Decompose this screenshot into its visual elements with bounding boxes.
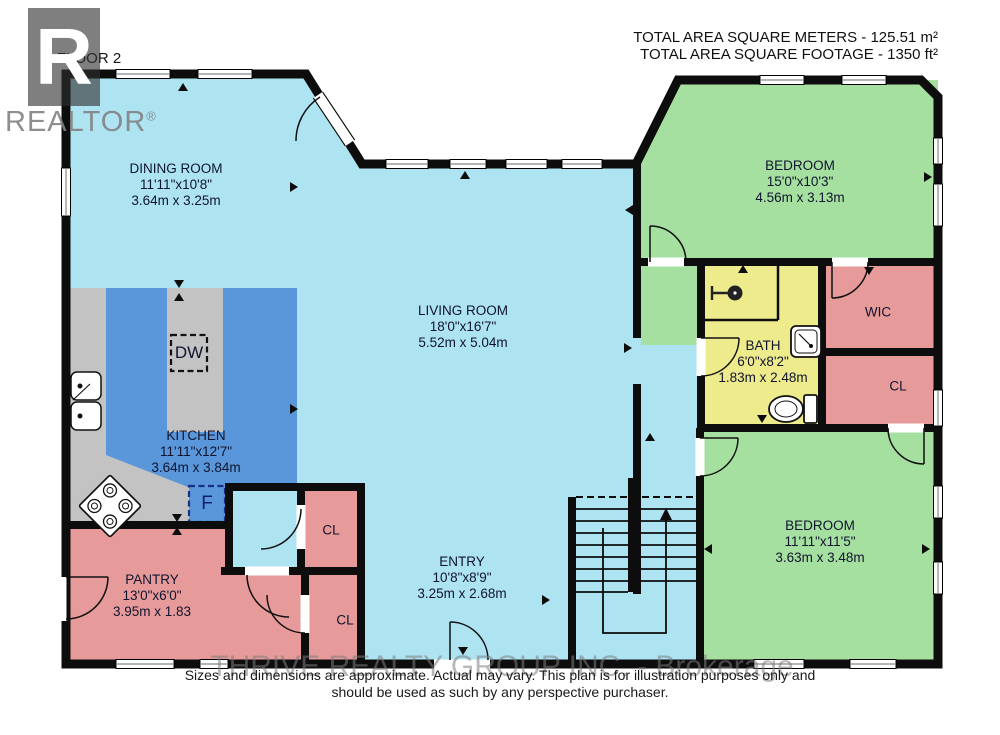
room-name: KITCHEN	[151, 428, 240, 444]
room-dim-ft: 11'11"x12'7"	[151, 444, 240, 460]
room-name: DINING ROOM	[130, 161, 223, 177]
registered-mark: ®	[146, 108, 157, 123]
room-label-bath: BATH 6'0"x8'2" 1.83m x 2.48m	[718, 338, 807, 386]
room-dim-ft: 15'0"x10'3"	[755, 174, 844, 190]
toilet-icon	[769, 395, 817, 423]
label-wic: WIC	[865, 305, 891, 320]
room-dim-m: 4.56m x 3.13m	[755, 190, 844, 206]
label-fridge: F	[201, 493, 213, 515]
total-area-metric: TOTAL AREA SQUARE METERS - 125.51 m²	[633, 29, 938, 46]
room-dim-m: 3.63m x 3.48m	[775, 550, 864, 566]
label-closet-right: CL	[889, 379, 906, 394]
closet-right-floor	[822, 354, 938, 432]
room-dim-m: 3.95m x 1.83	[113, 604, 191, 620]
room-label-pantry: PANTRY 13'0"x6'0" 3.95m x 1.83	[113, 572, 191, 620]
realtor-logo-icon: R	[28, 8, 100, 106]
disclaimer-line-1: Sizes and dimensions are approximate. Ac…	[0, 667, 1000, 684]
total-area-block: TOTAL AREA SQUARE METERS - 125.51 m² TOT…	[633, 29, 938, 63]
realtor-wordmark: REALTOR®	[5, 106, 157, 139]
total-area-imperial: TOTAL AREA SQUARE FOOTAGE - 1350 ft²	[633, 46, 938, 63]
room-dim-m: 3.25m x 2.68m	[417, 586, 506, 602]
room-dim-m: 3.64m x 3.84m	[151, 460, 240, 476]
disclaimer-line-2: should be used as such by any perspectiv…	[0, 684, 1000, 701]
room-dim-m: 1.83m x 2.48m	[718, 370, 807, 386]
room-name: LIVING ROOM	[418, 303, 508, 319]
room-dim-ft: 13'0"x6'0"	[113, 588, 191, 604]
room-name: BEDROOM	[755, 158, 844, 174]
floor-plan-page: DINING ROOM 11'11"x10'8" 3.64m x 3.25m L…	[0, 0, 1000, 735]
realtor-wordmark-text: REALTOR	[5, 106, 146, 138]
room-label-dining-room: DINING ROOM 11'11"x10'8" 3.64m x 3.25m	[130, 161, 223, 209]
realtor-logo-letter: R	[35, 12, 93, 101]
room-label-bedroom-lower: BEDROOM 11'11"x11'5" 3.63m x 3.48m	[775, 518, 864, 566]
room-name: BATH	[718, 338, 807, 354]
room-dim-m: 3.64m x 3.25m	[130, 193, 223, 209]
room-dim-ft: 10'8"x8'9"	[417, 570, 506, 586]
room-name: PANTRY	[113, 572, 191, 588]
label-closet-upper: CL	[322, 523, 339, 538]
room-name: ENTRY	[417, 554, 506, 570]
room-name: BEDROOM	[775, 518, 864, 534]
room-label-entry: ENTRY 10'8"x8'9" 3.25m x 2.68m	[417, 554, 506, 602]
label-dishwasher: DW	[175, 343, 203, 363]
room-dim-ft: 18'0"x16'7"	[418, 319, 508, 335]
label-closet-lower: CL	[336, 613, 353, 628]
hall-stairs-floor	[641, 345, 701, 664]
room-dim-ft: 11'11"x10'8"	[130, 177, 223, 193]
room-label-kitchen: KITCHEN 11'11"x12'7" 3.64m x 3.84m	[151, 428, 240, 476]
room-label-bedroom-upper: BEDROOM 15'0"x10'3" 4.56m x 3.13m	[755, 158, 844, 206]
room-dim-ft: 11'11"x11'5"	[775, 534, 864, 550]
disclaimer: Sizes and dimensions are approximate. Ac…	[0, 667, 1000, 701]
room-label-living-room: LIVING ROOM 18'0"x16'7" 5.52m x 5.04m	[418, 303, 508, 351]
room-dim-ft: 6'0"x8'2"	[718, 354, 807, 370]
room-dim-m: 5.52m x 5.04m	[418, 335, 508, 351]
